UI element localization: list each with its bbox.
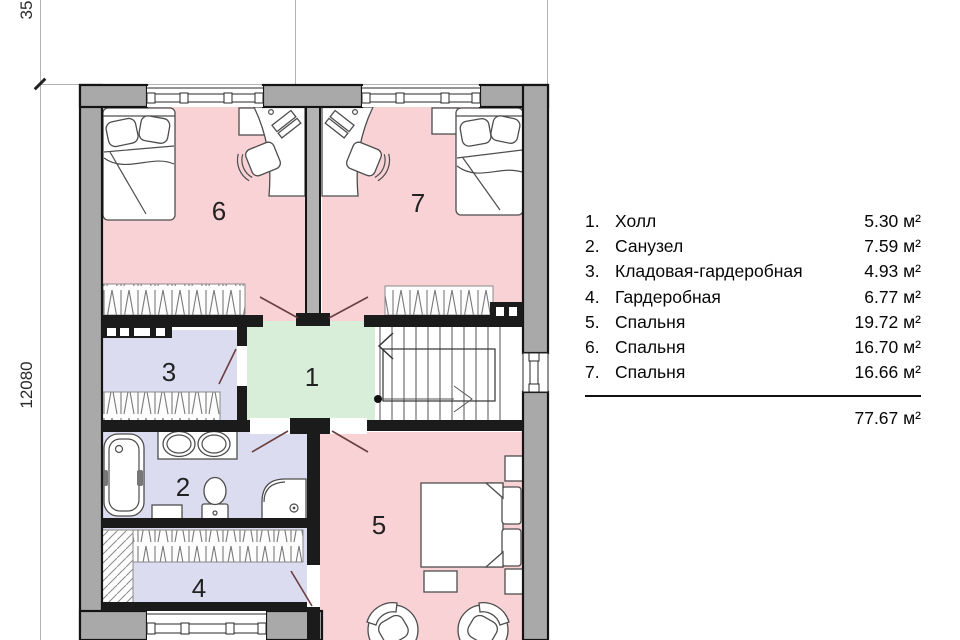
wall-exterior-right-lower	[523, 392, 548, 640]
stairs-floor	[375, 321, 523, 422]
nightstand-icon-room7	[432, 108, 459, 134]
shelf-band-room3	[102, 326, 172, 338]
legend-name: Спальня	[615, 362, 854, 383]
door-gap-hall-room3	[237, 346, 247, 386]
legend-area: 6.77 м²	[864, 287, 921, 308]
wall-exterior-bottom-left	[80, 611, 147, 640]
legend-divider	[585, 395, 921, 397]
window-room7	[362, 86, 480, 107]
legend-row-6: 6. Спальня 16.70 м²	[585, 335, 921, 360]
corner-shower-icon	[262, 479, 306, 522]
legend-num: 5.	[585, 312, 615, 333]
bed-icon-room6	[103, 108, 175, 220]
legend-num: 7.	[585, 362, 615, 383]
room-legend: 1. Холл 5.30 м² 2. Санузел 7.59 м² 3. Кл…	[585, 209, 921, 385]
legend-area: 16.66 м²	[854, 362, 921, 383]
legend-num: 6.	[585, 337, 615, 358]
room-number-7: 7	[411, 188, 425, 218]
toilet-icon	[202, 478, 228, 523]
legend-area: 4.93 м²	[864, 261, 921, 282]
legend-name: Холл	[615, 211, 864, 232]
wall-exterior-top-left	[80, 85, 147, 107]
wall-room2-room5	[307, 432, 320, 565]
room-number-2: 2	[176, 472, 190, 502]
legend-area: 5.30 м²	[864, 211, 921, 232]
wardrobe-hatch-room4-top	[133, 530, 303, 562]
wardrobe-hatch-room6	[103, 284, 245, 315]
wall-exterior-left	[80, 85, 102, 640]
nightstand-icon-room5-top	[505, 456, 523, 481]
room-number-4: 4	[192, 573, 206, 603]
wardrobe-hatch-room7	[385, 286, 493, 315]
legend-area: 7.59 м²	[864, 236, 921, 257]
wall-pier-hall-top	[296, 313, 330, 326]
bathtub-icon	[102, 434, 144, 516]
legend-num: 4.	[585, 287, 615, 308]
wall-room4-bottom	[102, 602, 307, 611]
legend-row-7: 7. Спальня 16.66 м²	[585, 360, 921, 385]
legend-area: 16.70 м²	[854, 337, 921, 358]
door-gap-hall-room2	[250, 418, 290, 434]
wall-room4-room5-stub	[307, 607, 320, 640]
room-number-3: 3	[162, 357, 176, 387]
legend-total-area: 77.67 м²	[585, 408, 921, 429]
legend-num: 2.	[585, 236, 615, 257]
wall-room6-room7	[306, 107, 320, 314]
wall-room3-hall-upper	[237, 315, 247, 346]
wall-pier-hall-bottom	[290, 418, 330, 434]
legend-name: Гардеробная	[615, 287, 864, 308]
legend-name: Спальня	[615, 337, 854, 358]
room-7-door-gap	[330, 303, 364, 321]
wardrobe-hatch-room3	[102, 392, 220, 422]
legend-name: Спальня	[615, 312, 854, 333]
floor-plan-drawing: 1 2 3 4 5 6 7	[0, 0, 560, 640]
window-stairs	[523, 353, 548, 392]
wall-room3-room2	[102, 420, 250, 432]
legend-row-4: 4. Гардеробная 6.77 м²	[585, 285, 921, 310]
legend-num: 1.	[585, 211, 615, 232]
legend-name: Санузел	[615, 236, 864, 257]
room-6-door-gap	[263, 303, 296, 321]
window-room4	[147, 611, 266, 640]
wall-room3-hall-lower	[237, 386, 247, 422]
legend-row-3: 3. Кладовая-гардеробная 4.93 м²	[585, 259, 921, 284]
legend-row-1: 1. Холл 5.30 м²	[585, 209, 921, 234]
room-number-6: 6	[212, 196, 226, 226]
legend-num: 3.	[585, 261, 615, 282]
floor-plan-page: 12080 35	[0, 0, 960, 640]
wall-stairs-bottom	[367, 420, 523, 431]
nightstand-icon-room5-bottom	[505, 569, 523, 594]
flue-block	[490, 302, 523, 322]
legend-row-2: 2. Санузел 7.59 м²	[585, 234, 921, 259]
legend-name: Кладовая-гардеробная	[615, 261, 864, 282]
wall-exterior-top-mid	[263, 85, 362, 107]
legend-area: 19.72 м²	[854, 312, 921, 333]
bench-icon-room5	[424, 571, 457, 592]
wardrobe-hatch-room4-left	[102, 530, 133, 604]
room-number-1: 1	[305, 362, 319, 392]
stair-start-dot	[374, 395, 382, 403]
wall-room2-room4	[102, 518, 307, 528]
wall-exterior-right-upper	[523, 85, 548, 353]
room-number-5: 5	[372, 510, 386, 540]
window-room6	[147, 86, 263, 107]
bed-icon-room7	[456, 108, 523, 215]
door-gap-hall-room5	[330, 418, 367, 434]
legend-row-5: 5. Спальня 19.72 м²	[585, 310, 921, 335]
